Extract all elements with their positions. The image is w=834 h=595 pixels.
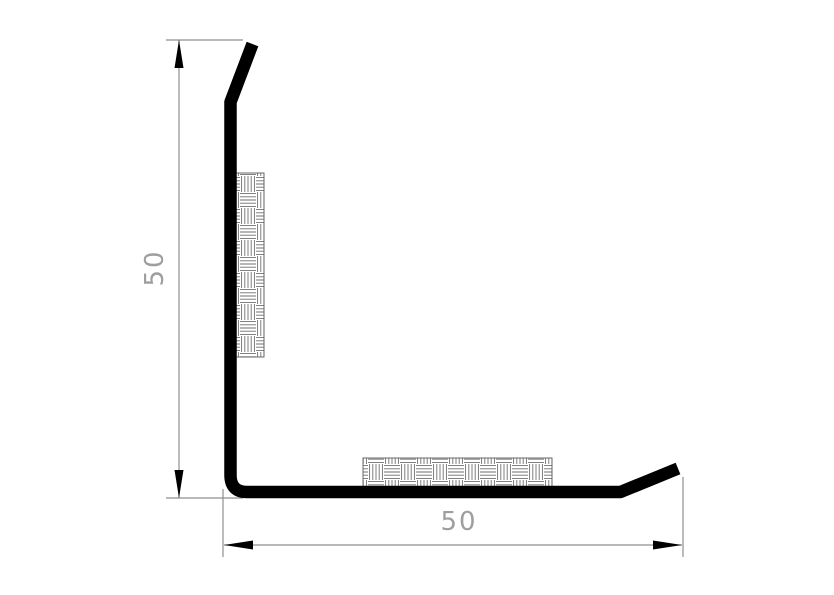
vertical-dimension-label: 50	[140, 238, 170, 298]
tape-strips	[234, 173, 552, 487]
arrow-down-icon	[175, 470, 184, 498]
angle-profile-outline	[231, 44, 679, 492]
arrow-left-icon	[224, 541, 253, 550]
horizontal-leg-tape-hatch	[363, 458, 552, 487]
vertical-leg-tape-hatch	[234, 173, 264, 357]
arrow-right-icon	[653, 541, 682, 550]
arrow-up-icon	[175, 40, 184, 68]
horizontal-dimension-label: 50	[419, 507, 499, 537]
technical-drawing-svg	[0, 0, 834, 595]
drawing-canvas: 50 50	[0, 0, 834, 595]
